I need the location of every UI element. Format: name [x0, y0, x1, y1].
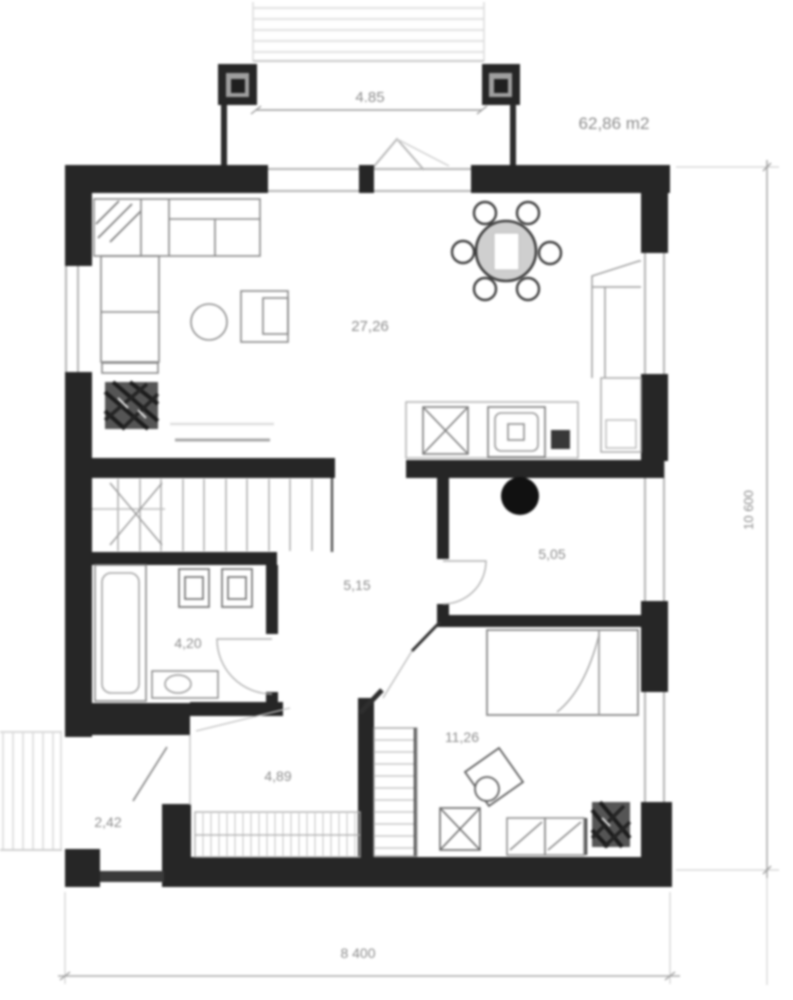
svg-text:5,15: 5,15 [343, 577, 370, 593]
svg-text:8 400: 8 400 [340, 945, 375, 961]
svg-text:4,20: 4,20 [174, 635, 201, 651]
svg-text:27,26: 27,26 [351, 318, 389, 335]
svg-text:10 600: 10 600 [741, 490, 756, 530]
svg-text:11,26: 11,26 [445, 729, 479, 745]
svg-text:4.85: 4.85 [355, 89, 384, 106]
svg-text:62,86 m2: 62,86 m2 [579, 114, 650, 133]
svg-text:5,05: 5,05 [538, 546, 565, 562]
svg-text:4,89: 4,89 [264, 768, 291, 784]
svg-text:2,42: 2,42 [94, 814, 121, 830]
